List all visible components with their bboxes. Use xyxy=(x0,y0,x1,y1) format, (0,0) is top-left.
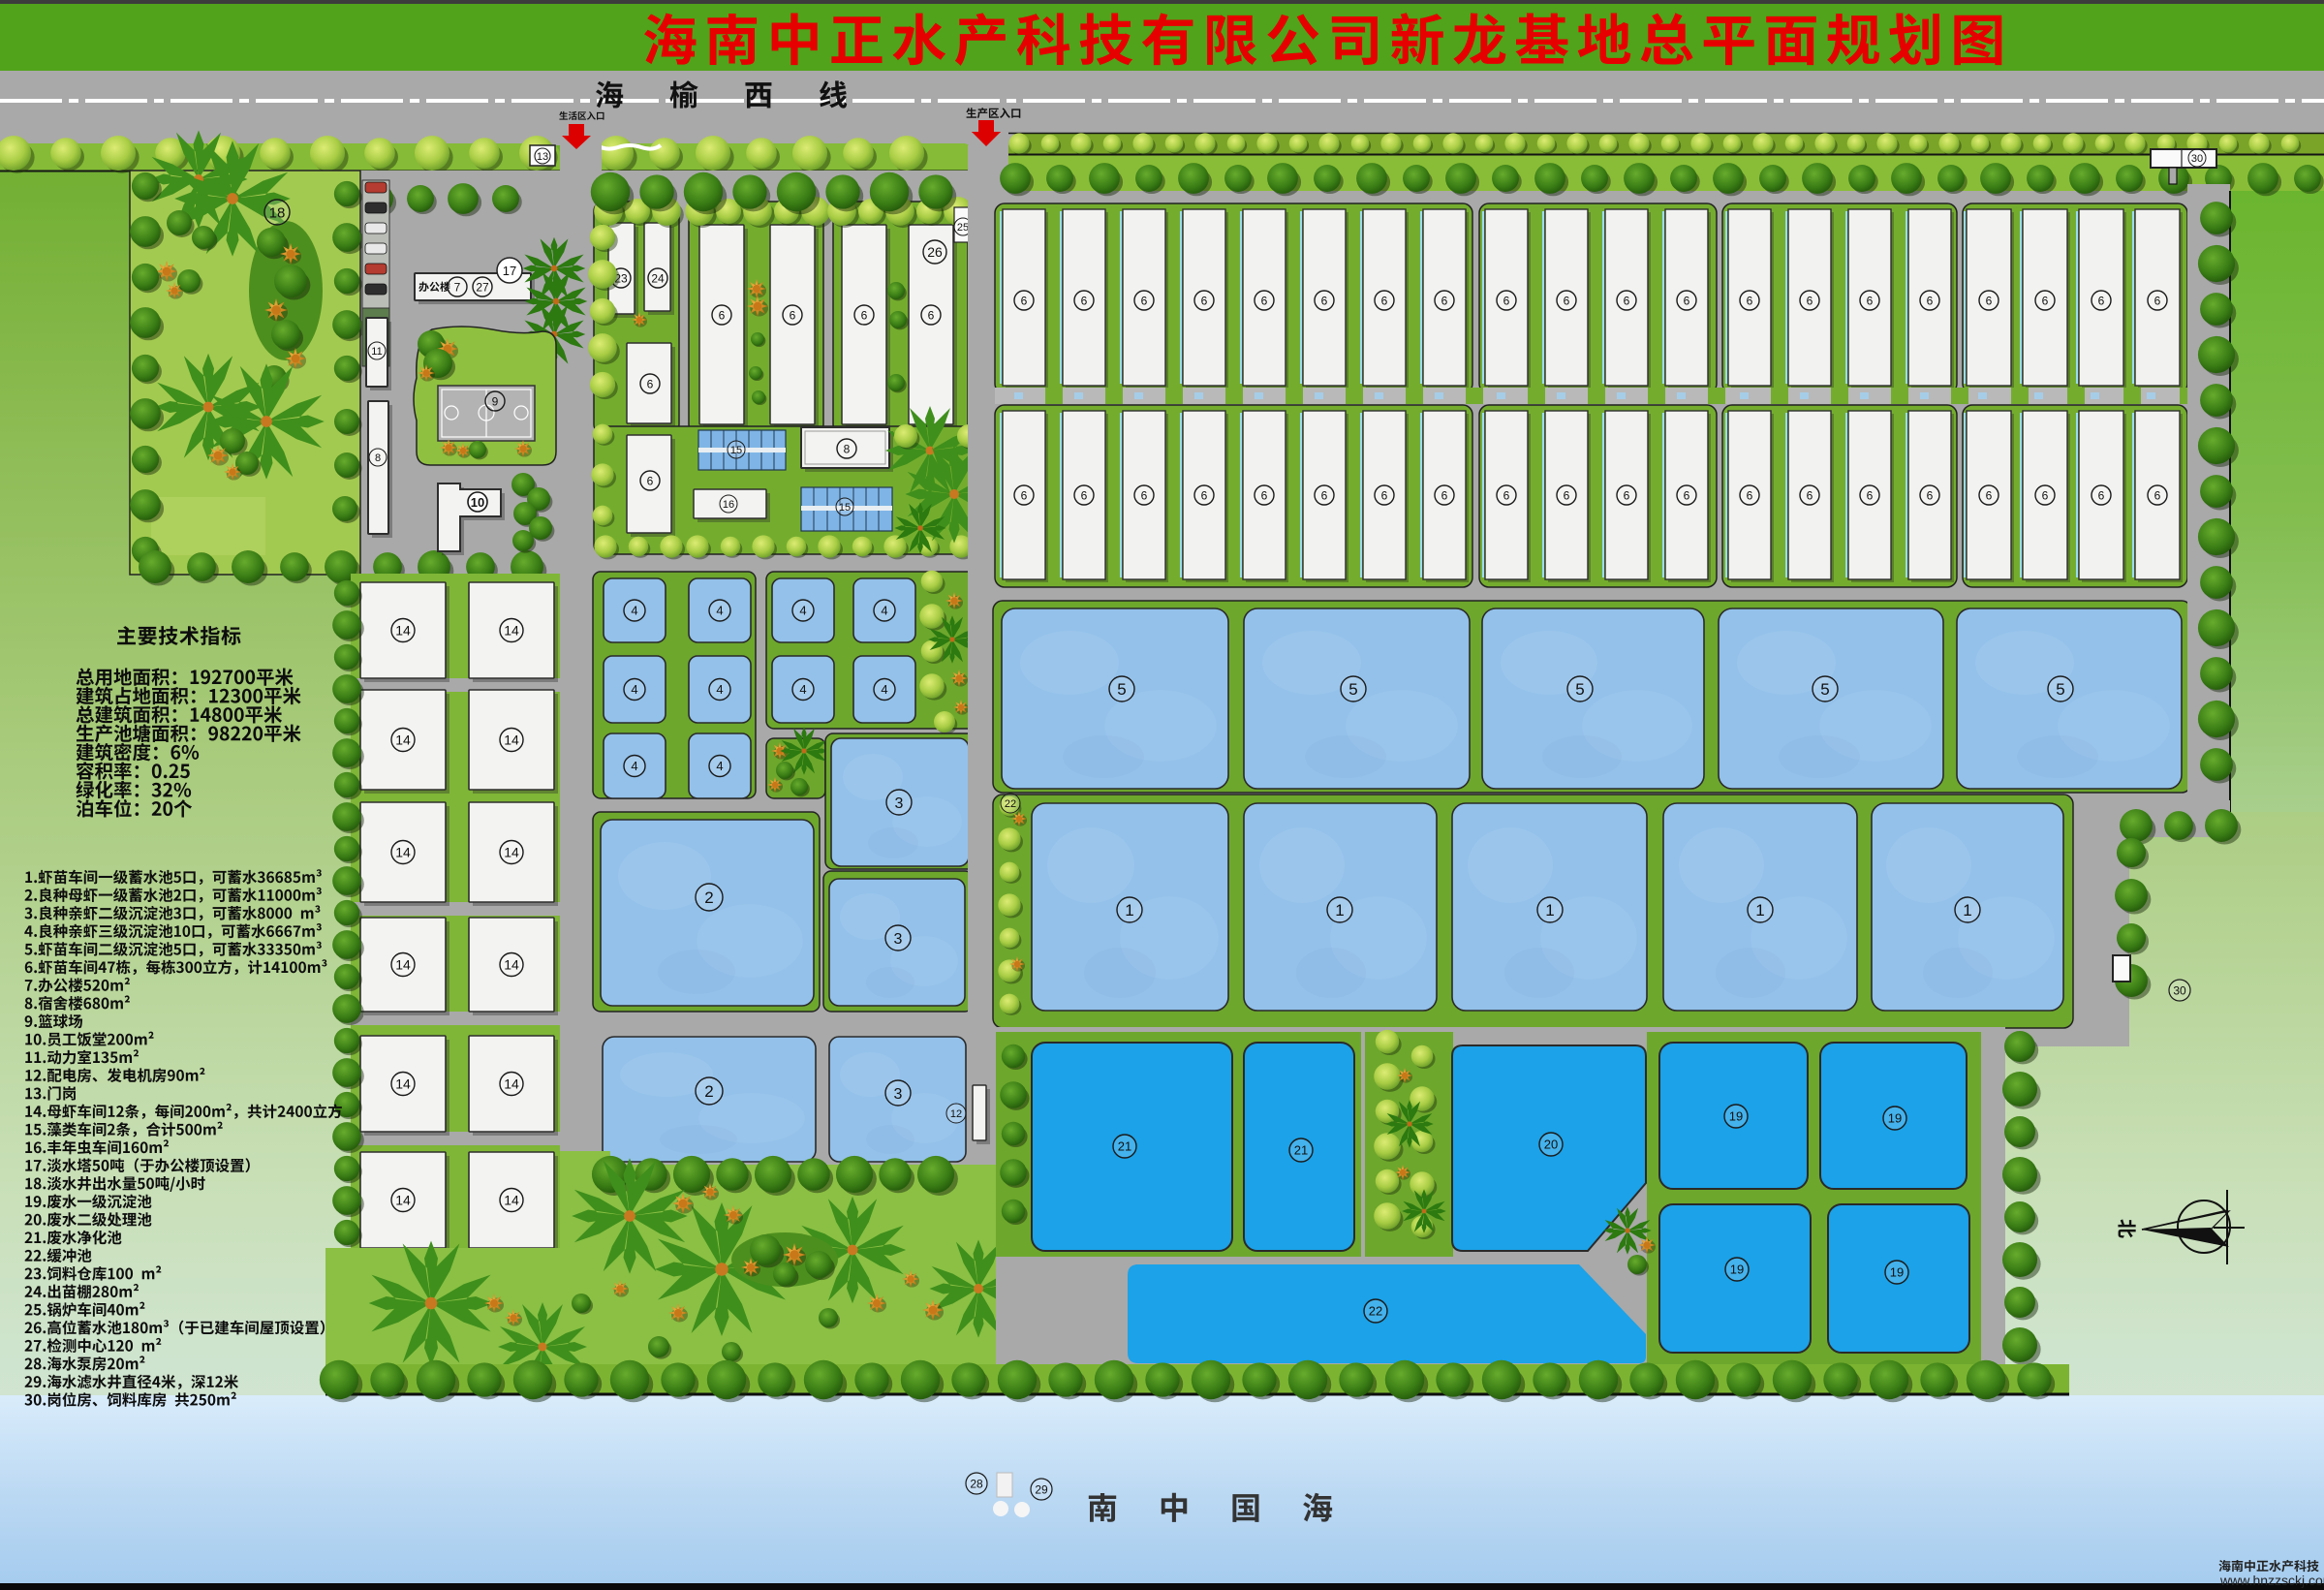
svg-text:6: 6 xyxy=(1201,294,1208,307)
svg-text:3: 3 xyxy=(895,795,904,812)
svg-text:6: 6 xyxy=(1441,488,1448,502)
svg-text:14: 14 xyxy=(504,1076,519,1092)
svg-text:19: 19 xyxy=(1890,1265,1904,1280)
svg-text:25: 25 xyxy=(957,222,969,234)
svg-text:6: 6 xyxy=(1021,294,1028,307)
svg-text:4: 4 xyxy=(716,759,723,773)
svg-text:6: 6 xyxy=(1807,488,1813,502)
svg-text:6: 6 xyxy=(1141,294,1148,307)
svg-text:24: 24 xyxy=(651,271,665,285)
svg-text:6: 6 xyxy=(1747,488,1753,502)
svg-text:13: 13 xyxy=(537,151,548,163)
svg-text:6: 6 xyxy=(790,308,796,322)
svg-text:14: 14 xyxy=(395,1076,411,1092)
svg-text:9: 9 xyxy=(492,394,499,408)
svg-text:1: 1 xyxy=(1335,901,1344,920)
svg-text:6: 6 xyxy=(1261,294,1268,307)
svg-text:5: 5 xyxy=(1348,680,1357,699)
svg-text:19: 19 xyxy=(1730,1263,1744,1277)
svg-text:6: 6 xyxy=(1867,294,1874,307)
svg-text:6: 6 xyxy=(647,474,654,487)
svg-text:8: 8 xyxy=(375,452,381,464)
svg-text:6: 6 xyxy=(928,308,935,322)
svg-text:6: 6 xyxy=(1503,488,1510,502)
svg-text:6: 6 xyxy=(1441,294,1448,307)
svg-text:14: 14 xyxy=(504,957,519,973)
svg-text:4: 4 xyxy=(631,604,637,618)
svg-text:1: 1 xyxy=(1125,901,1133,920)
svg-text:15: 15 xyxy=(730,445,742,456)
svg-text:6: 6 xyxy=(1986,488,1993,502)
svg-text:14: 14 xyxy=(504,733,519,748)
svg-text:5: 5 xyxy=(1820,680,1829,699)
svg-text:17: 17 xyxy=(503,264,516,278)
svg-text:21: 21 xyxy=(1118,1139,1131,1154)
svg-text:20: 20 xyxy=(1544,1138,1558,1152)
svg-text:14: 14 xyxy=(395,733,411,748)
svg-text:6: 6 xyxy=(647,377,654,390)
svg-text:5: 5 xyxy=(1575,680,1584,699)
svg-text:3: 3 xyxy=(894,1086,903,1103)
svg-text:6: 6 xyxy=(1927,294,1934,307)
svg-text:14: 14 xyxy=(504,623,519,639)
svg-text:6: 6 xyxy=(1021,488,1028,502)
svg-text:4: 4 xyxy=(881,682,887,697)
svg-text:14: 14 xyxy=(504,1193,519,1208)
svg-text:6: 6 xyxy=(1684,294,1690,307)
svg-text:6: 6 xyxy=(1684,488,1690,502)
svg-text:22: 22 xyxy=(1369,1304,1382,1319)
svg-text:www.hnzzsckj.com: www.hnzzsckj.com xyxy=(2219,1573,2324,1588)
svg-text:4: 4 xyxy=(716,682,723,697)
svg-text:1: 1 xyxy=(1545,901,1554,920)
svg-text:6: 6 xyxy=(1081,294,1088,307)
svg-text:5: 5 xyxy=(1117,680,1126,699)
svg-text:6: 6 xyxy=(1624,488,1630,502)
svg-text:6: 6 xyxy=(1564,294,1570,307)
svg-text:6: 6 xyxy=(1807,294,1813,307)
svg-text:14: 14 xyxy=(504,845,519,860)
svg-text:6: 6 xyxy=(1503,294,1510,307)
svg-text:6: 6 xyxy=(1867,488,1874,502)
svg-text:6: 6 xyxy=(2154,294,2161,307)
svg-text:6: 6 xyxy=(2154,488,2161,502)
svg-text:6: 6 xyxy=(1261,488,1268,502)
svg-text:19: 19 xyxy=(1729,1109,1743,1124)
svg-text:1: 1 xyxy=(1755,901,1764,920)
svg-text:6: 6 xyxy=(719,308,726,322)
svg-text:4: 4 xyxy=(716,604,723,618)
svg-text:1: 1 xyxy=(1963,901,1971,920)
svg-text:6: 6 xyxy=(2042,294,2049,307)
svg-text:22: 22 xyxy=(1005,798,1016,810)
svg-text:6: 6 xyxy=(1624,294,1630,307)
svg-text:5: 5 xyxy=(2056,680,2064,699)
svg-text:29: 29 xyxy=(1035,1482,1048,1496)
svg-text:6: 6 xyxy=(1081,488,1088,502)
svg-text:16: 16 xyxy=(723,499,734,511)
svg-text:6: 6 xyxy=(1381,294,1388,307)
svg-text:4: 4 xyxy=(881,604,887,618)
svg-text:18: 18 xyxy=(269,204,286,221)
svg-text:6: 6 xyxy=(1986,294,1993,307)
svg-text:4: 4 xyxy=(799,604,806,618)
svg-text:6: 6 xyxy=(1381,488,1388,502)
svg-text:6: 6 xyxy=(1747,294,1753,307)
svg-text:21: 21 xyxy=(1294,1143,1308,1158)
svg-text:6: 6 xyxy=(1564,488,1570,502)
svg-text:6: 6 xyxy=(2098,294,2105,307)
svg-text:6: 6 xyxy=(1927,488,1934,502)
svg-text:12: 12 xyxy=(950,1108,962,1120)
svg-text:6: 6 xyxy=(2042,488,2049,502)
svg-text:2: 2 xyxy=(704,1082,713,1101)
svg-text:28: 28 xyxy=(970,1477,983,1490)
svg-text:6: 6 xyxy=(2098,488,2105,502)
svg-text:11: 11 xyxy=(371,346,382,358)
svg-text:27: 27 xyxy=(476,280,489,294)
svg-text:6: 6 xyxy=(1321,488,1328,502)
svg-text:4: 4 xyxy=(799,682,806,697)
svg-text:6: 6 xyxy=(1201,488,1208,502)
svg-text:15: 15 xyxy=(839,502,851,514)
svg-text:14: 14 xyxy=(395,623,411,639)
svg-text:4: 4 xyxy=(631,759,637,773)
svg-text:14: 14 xyxy=(395,845,411,860)
svg-text:7: 7 xyxy=(454,280,461,294)
svg-text:19: 19 xyxy=(1888,1111,1902,1126)
svg-text:6: 6 xyxy=(1141,488,1148,502)
svg-text:3: 3 xyxy=(894,931,903,948)
svg-text:2: 2 xyxy=(704,889,713,907)
svg-text:4: 4 xyxy=(631,682,637,697)
svg-text:6: 6 xyxy=(1321,294,1328,307)
svg-text:30: 30 xyxy=(2191,153,2203,165)
svg-text:30: 30 xyxy=(2173,983,2186,997)
svg-text:10: 10 xyxy=(471,495,484,510)
svg-text:26: 26 xyxy=(927,244,943,260)
svg-text:8: 8 xyxy=(844,442,851,455)
svg-text:14: 14 xyxy=(395,1193,411,1208)
svg-text:14: 14 xyxy=(395,957,411,973)
svg-text:6: 6 xyxy=(861,308,868,322)
